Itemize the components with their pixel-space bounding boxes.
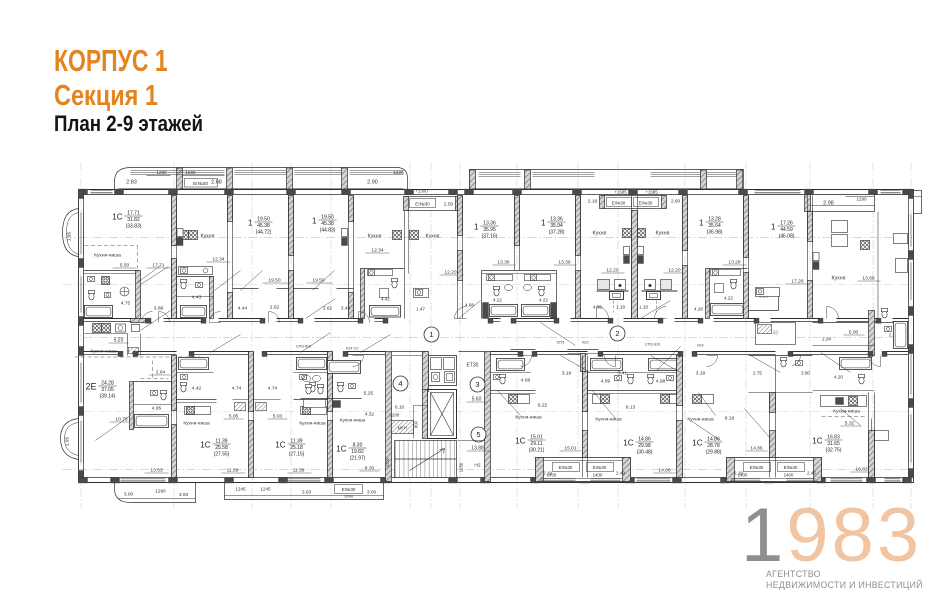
- svg-text:(21.97): (21.97): [350, 456, 366, 462]
- svg-text:14.86: 14.86: [750, 446, 763, 452]
- svg-text:37.05: 37.05: [101, 387, 114, 393]
- svg-text:ЮЗ: ЮЗ: [697, 344, 704, 348]
- svg-text:2: 2: [615, 329, 619, 338]
- svg-text:3.19: 3.19: [562, 371, 572, 377]
- svg-text:2.90: 2.90: [367, 180, 378, 186]
- svg-text:Кухня: Кухня: [656, 231, 670, 237]
- svg-text:Кухня: Кухня: [832, 276, 846, 282]
- svg-text:25.58: 25.58: [215, 445, 228, 451]
- svg-text:(27.15): (27.15): [289, 452, 305, 458]
- svg-text:8.30: 8.30: [365, 466, 375, 472]
- svg-text:2.60: 2.60: [671, 199, 681, 205]
- svg-text:4.22: 4.22: [539, 298, 548, 303]
- svg-text:11.39: 11.39: [293, 468, 305, 474]
- svg-text:ЮЗ СС: ЮЗ СС: [346, 347, 359, 351]
- svg-text:1200: 1200: [390, 413, 400, 418]
- svg-text:4.89: 4.89: [601, 379, 611, 385]
- svg-text:(30.48): (30.48): [637, 450, 653, 456]
- svg-text:31.82: 31.82: [127, 217, 140, 223]
- svg-text:2.18: 2.18: [588, 199, 598, 205]
- svg-text:1С: 1С: [692, 439, 702, 448]
- svg-text:(44.83): (44.83): [320, 228, 336, 234]
- svg-text:2.19: 2.19: [734, 471, 743, 476]
- svg-text:1.18: 1.18: [639, 305, 648, 310]
- svg-text:4.22: 4.22: [493, 298, 502, 303]
- svg-text:13.69: 13.69: [862, 276, 875, 282]
- svg-text:17.71: 17.71: [127, 211, 140, 217]
- svg-text:4.43: 4.43: [192, 295, 202, 301]
- svg-text:Кухня: Кухня: [201, 234, 215, 240]
- svg-text:1С: 1С: [112, 213, 122, 222]
- svg-text:1990: 1990: [344, 494, 354, 499]
- svg-text:29.98: 29.98: [638, 443, 651, 449]
- svg-text:5.00: 5.00: [849, 330, 859, 336]
- svg-text:СПЗ: СПЗ: [557, 341, 565, 345]
- svg-text:1.95: 1.95: [67, 232, 73, 242]
- svg-text:15.01: 15.01: [564, 446, 577, 452]
- svg-text:4.26: 4.26: [694, 307, 703, 312]
- svg-text:Кухня-ниша: Кухня-ниша: [340, 418, 366, 423]
- svg-text:3.41: 3.41: [618, 371, 628, 377]
- svg-text:19.50: 19.50: [321, 215, 334, 221]
- svg-text:2.83: 2.83: [126, 180, 137, 186]
- svg-text:ЕІ№30: ЕІ№30: [784, 465, 798, 470]
- svg-text:24.28: 24.28: [101, 381, 114, 387]
- svg-text:2.45: 2.45: [807, 471, 816, 476]
- svg-text:2.04: 2.04: [822, 337, 831, 342]
- svg-text:19.82: 19.82: [351, 449, 364, 455]
- svg-text:14.86: 14.86: [658, 468, 671, 474]
- svg-text:13.53: 13.53: [150, 468, 163, 474]
- svg-text:3.93: 3.93: [179, 492, 189, 498]
- svg-text:1.47: 1.47: [416, 307, 425, 312]
- svg-text:4.98: 4.98: [593, 305, 602, 310]
- svg-text:Кухня: Кухня: [593, 231, 607, 237]
- svg-text:4.32: 4.32: [365, 412, 374, 417]
- svg-text:1: 1: [541, 219, 546, 228]
- svg-text:1С: 1С: [812, 437, 822, 446]
- svg-text:1С: 1С: [623, 439, 633, 448]
- svg-text:Кухня-ниша: Кухня-ниша: [94, 253, 121, 259]
- svg-text:2.68: 2.68: [211, 180, 222, 186]
- svg-text:ЮЗ: ЮЗ: [582, 341, 589, 345]
- svg-text:1С: 1С: [515, 437, 525, 446]
- svg-text:3.45: 3.45: [341, 306, 351, 312]
- svg-text:(37.16): (37.16): [482, 234, 498, 240]
- svg-text:ЕІ№30: ЕІ№30: [559, 465, 573, 470]
- svg-text:3.19: 3.19: [696, 371, 706, 377]
- svg-text:(37.28): (37.28): [549, 230, 565, 236]
- svg-text:1400: 1400: [784, 473, 794, 478]
- svg-text:12.34: 12.34: [212, 257, 225, 263]
- svg-text:8.16: 8.16: [395, 405, 405, 411]
- svg-text:4: 4: [398, 379, 402, 388]
- svg-text:1245: 1245: [235, 487, 246, 492]
- svg-text:12.34: 12.34: [371, 248, 384, 254]
- svg-text:5.03: 5.03: [273, 414, 283, 420]
- svg-text:ЕІ№30: ЕІ№30: [639, 201, 653, 206]
- svg-text:6.19: 6.19: [725, 416, 735, 422]
- svg-text:(30.21): (30.21): [529, 448, 545, 454]
- svg-text:СПЗ ЮЗ: СПЗ ЮЗ: [645, 343, 661, 347]
- svg-text:5.50: 5.50: [120, 263, 130, 269]
- svg-text:3.00: 3.00: [367, 490, 377, 496]
- svg-text:4.75: 4.75: [121, 301, 131, 307]
- svg-text:2.62: 2.62: [270, 305, 280, 311]
- svg-text:МГН: МГН: [398, 426, 407, 431]
- svg-text:ЕІ№30: ЕІ№30: [342, 487, 356, 492]
- svg-text:(33.83): (33.83): [126, 224, 142, 230]
- svg-text:12.20: 12.20: [668, 268, 681, 274]
- svg-text:Кухня: Кухня: [426, 234, 440, 240]
- svg-text:Кухня-ниша: Кухня-ниша: [515, 415, 542, 421]
- svg-text:44.59: 44.59: [780, 227, 793, 233]
- svg-text:2.98: 2.98: [823, 201, 834, 207]
- svg-text:Кухня-ниша: Кухня-ниша: [299, 421, 326, 427]
- svg-text:ЕІ№30: ЕІ№30: [415, 202, 430, 207]
- svg-text:35.95: 35.95: [483, 227, 496, 233]
- svg-text:1050: 1050: [459, 462, 464, 472]
- svg-text:13.28: 13.28: [728, 260, 741, 266]
- svg-text:19.50: 19.50: [312, 278, 325, 284]
- svg-text:1.95: 1.95: [65, 437, 71, 447]
- svg-text:45.38: 45.38: [257, 223, 270, 229]
- svg-text:16.83: 16.83: [855, 467, 868, 473]
- svg-text:2.64: 2.64: [156, 370, 166, 376]
- svg-text:1290: 1290: [856, 197, 867, 202]
- svg-text:+1585: +1585: [614, 190, 627, 195]
- svg-text:1: 1: [429, 330, 433, 339]
- svg-text:1.18: 1.18: [616, 305, 625, 310]
- svg-text:13.36: 13.36: [550, 217, 563, 223]
- svg-text:1290: 1290: [155, 489, 166, 494]
- svg-text:ЕІ№30: ЕІ№30: [593, 465, 607, 470]
- svg-text:(36.98): (36.98): [707, 230, 723, 236]
- svg-text:6.22: 6.22: [538, 403, 548, 409]
- svg-text:Кухня-ниша: Кухня-ниша: [687, 417, 714, 423]
- svg-text:ЕІ№30: ЕІ№30: [193, 181, 208, 187]
- svg-text:13.36: 13.36: [497, 260, 510, 266]
- svg-text:19.50: 19.50: [257, 217, 270, 223]
- svg-text:35.64: 35.64: [708, 223, 721, 229]
- svg-text:4.42: 4.42: [381, 297, 390, 302]
- svg-text:2.19: 2.19: [543, 471, 552, 476]
- svg-text:2250: 2250: [385, 457, 390, 467]
- svg-text:6.13: 6.13: [626, 405, 636, 411]
- svg-text:17.26: 17.26: [791, 279, 804, 285]
- svg-text:(46.08): (46.08): [779, 234, 795, 240]
- svg-text:2.50: 2.50: [444, 202, 454, 208]
- svg-text:4.98: 4.98: [656, 379, 666, 385]
- svg-text:(39.14): (39.14): [100, 394, 116, 400]
- svg-text:1С: 1С: [336, 445, 346, 454]
- svg-text:1: 1: [771, 223, 776, 232]
- svg-text:1С: 1С: [200, 441, 210, 450]
- svg-text:40: 40: [773, 331, 779, 337]
- svg-text:25.18: 25.18: [290, 445, 303, 451]
- svg-text:4.22: 4.22: [724, 296, 733, 301]
- svg-text:3: 3: [475, 380, 479, 389]
- svg-text:13.36: 13.36: [558, 260, 571, 266]
- svg-text:35.94: 35.94: [550, 223, 563, 229]
- svg-text:3.88: 3.88: [154, 306, 164, 312]
- svg-text:12.20: 12.20: [444, 270, 457, 276]
- svg-text:(29.88): (29.88): [706, 450, 722, 456]
- svg-text:800: 800: [414, 420, 419, 428]
- svg-text:3.80: 3.80: [801, 371, 810, 376]
- svg-text:4.74: 4.74: [232, 386, 242, 392]
- svg-text:2.49: 2.49: [616, 471, 625, 476]
- svg-text:4.44: 4.44: [238, 306, 248, 312]
- svg-text:1: 1: [474, 223, 479, 232]
- svg-text:(32.75): (32.75): [826, 448, 842, 454]
- svg-text:(27.55): (27.55): [214, 452, 230, 458]
- svg-text:16.83: 16.83: [827, 435, 840, 441]
- svg-text:4.95: 4.95: [152, 406, 162, 412]
- svg-text:2.75: 2.75: [753, 371, 762, 376]
- svg-text:+1585: +1585: [645, 190, 658, 195]
- svg-text:14.86: 14.86: [707, 437, 720, 443]
- svg-text:11.59: 11.59: [227, 468, 239, 474]
- svg-text:1С: 1С: [275, 441, 285, 450]
- svg-text:1245: 1245: [260, 487, 271, 492]
- svg-text:5.32: 5.32: [845, 421, 855, 427]
- svg-text:17.26: 17.26: [780, 221, 793, 227]
- svg-text:17.71: 17.71: [152, 263, 165, 269]
- svg-text:ЕІ№30: ЕІ№30: [612, 201, 626, 206]
- svg-text:Н2: Н2: [474, 463, 480, 469]
- svg-text:5: 5: [476, 430, 480, 439]
- svg-text:5.60: 5.60: [472, 397, 482, 403]
- svg-text:5.20: 5.20: [114, 338, 124, 344]
- svg-text:Кухня-ниша: Кухня-ниша: [183, 421, 210, 427]
- svg-text:12.20: 12.20: [606, 268, 619, 274]
- svg-text:1: 1: [248, 219, 253, 228]
- svg-text:19.50: 19.50: [268, 278, 281, 284]
- svg-text:13.88: 13.88: [471, 446, 484, 452]
- svg-text:(44.72): (44.72): [256, 230, 272, 236]
- svg-text:+1300: +1300: [415, 189, 428, 194]
- svg-text:13.28: 13.28: [708, 217, 721, 223]
- svg-text:4.74: 4.74: [268, 386, 278, 392]
- svg-text:11.39: 11.39: [290, 439, 302, 445]
- svg-text:31.65: 31.65: [827, 441, 840, 447]
- svg-text:11.39: 11.39: [215, 439, 227, 445]
- svg-text:Кухня-ниша: Кухня-ниша: [90, 349, 117, 355]
- svg-text:2Е: 2Е: [85, 382, 96, 392]
- svg-text:Кухня: Кухня: [368, 234, 382, 240]
- svg-text:3.93: 3.93: [302, 490, 312, 496]
- svg-text:1: 1: [312, 217, 317, 226]
- svg-text:8.30: 8.30: [353, 443, 363, 449]
- svg-text:1: 1: [699, 219, 704, 228]
- svg-text:45.38: 45.38: [321, 221, 334, 227]
- svg-text:15.01: 15.01: [530, 435, 543, 441]
- svg-text:5.25: 5.25: [364, 391, 374, 397]
- svg-text:4.20: 4.20: [834, 375, 843, 380]
- svg-text:2.62: 2.62: [323, 306, 332, 311]
- svg-text:ЕТ30: ЕТ30: [467, 363, 479, 369]
- svg-text:28.78: 28.78: [707, 443, 720, 449]
- svg-text:Кухня-ниша: Кухня-ниша: [595, 417, 622, 423]
- svg-text:4.69: 4.69: [521, 378, 531, 384]
- svg-text:3.00: 3.00: [124, 492, 134, 498]
- svg-text:ЕІ№30: ЕІ№30: [750, 465, 764, 470]
- svg-text:5.05: 5.05: [229, 414, 239, 420]
- svg-text:29.11: 29.11: [530, 441, 542, 447]
- svg-text:14.86: 14.86: [638, 437, 651, 443]
- svg-text:1400: 1400: [593, 473, 603, 478]
- svg-text:13.36: 13.36: [483, 221, 496, 227]
- svg-text:4.42: 4.42: [192, 386, 202, 392]
